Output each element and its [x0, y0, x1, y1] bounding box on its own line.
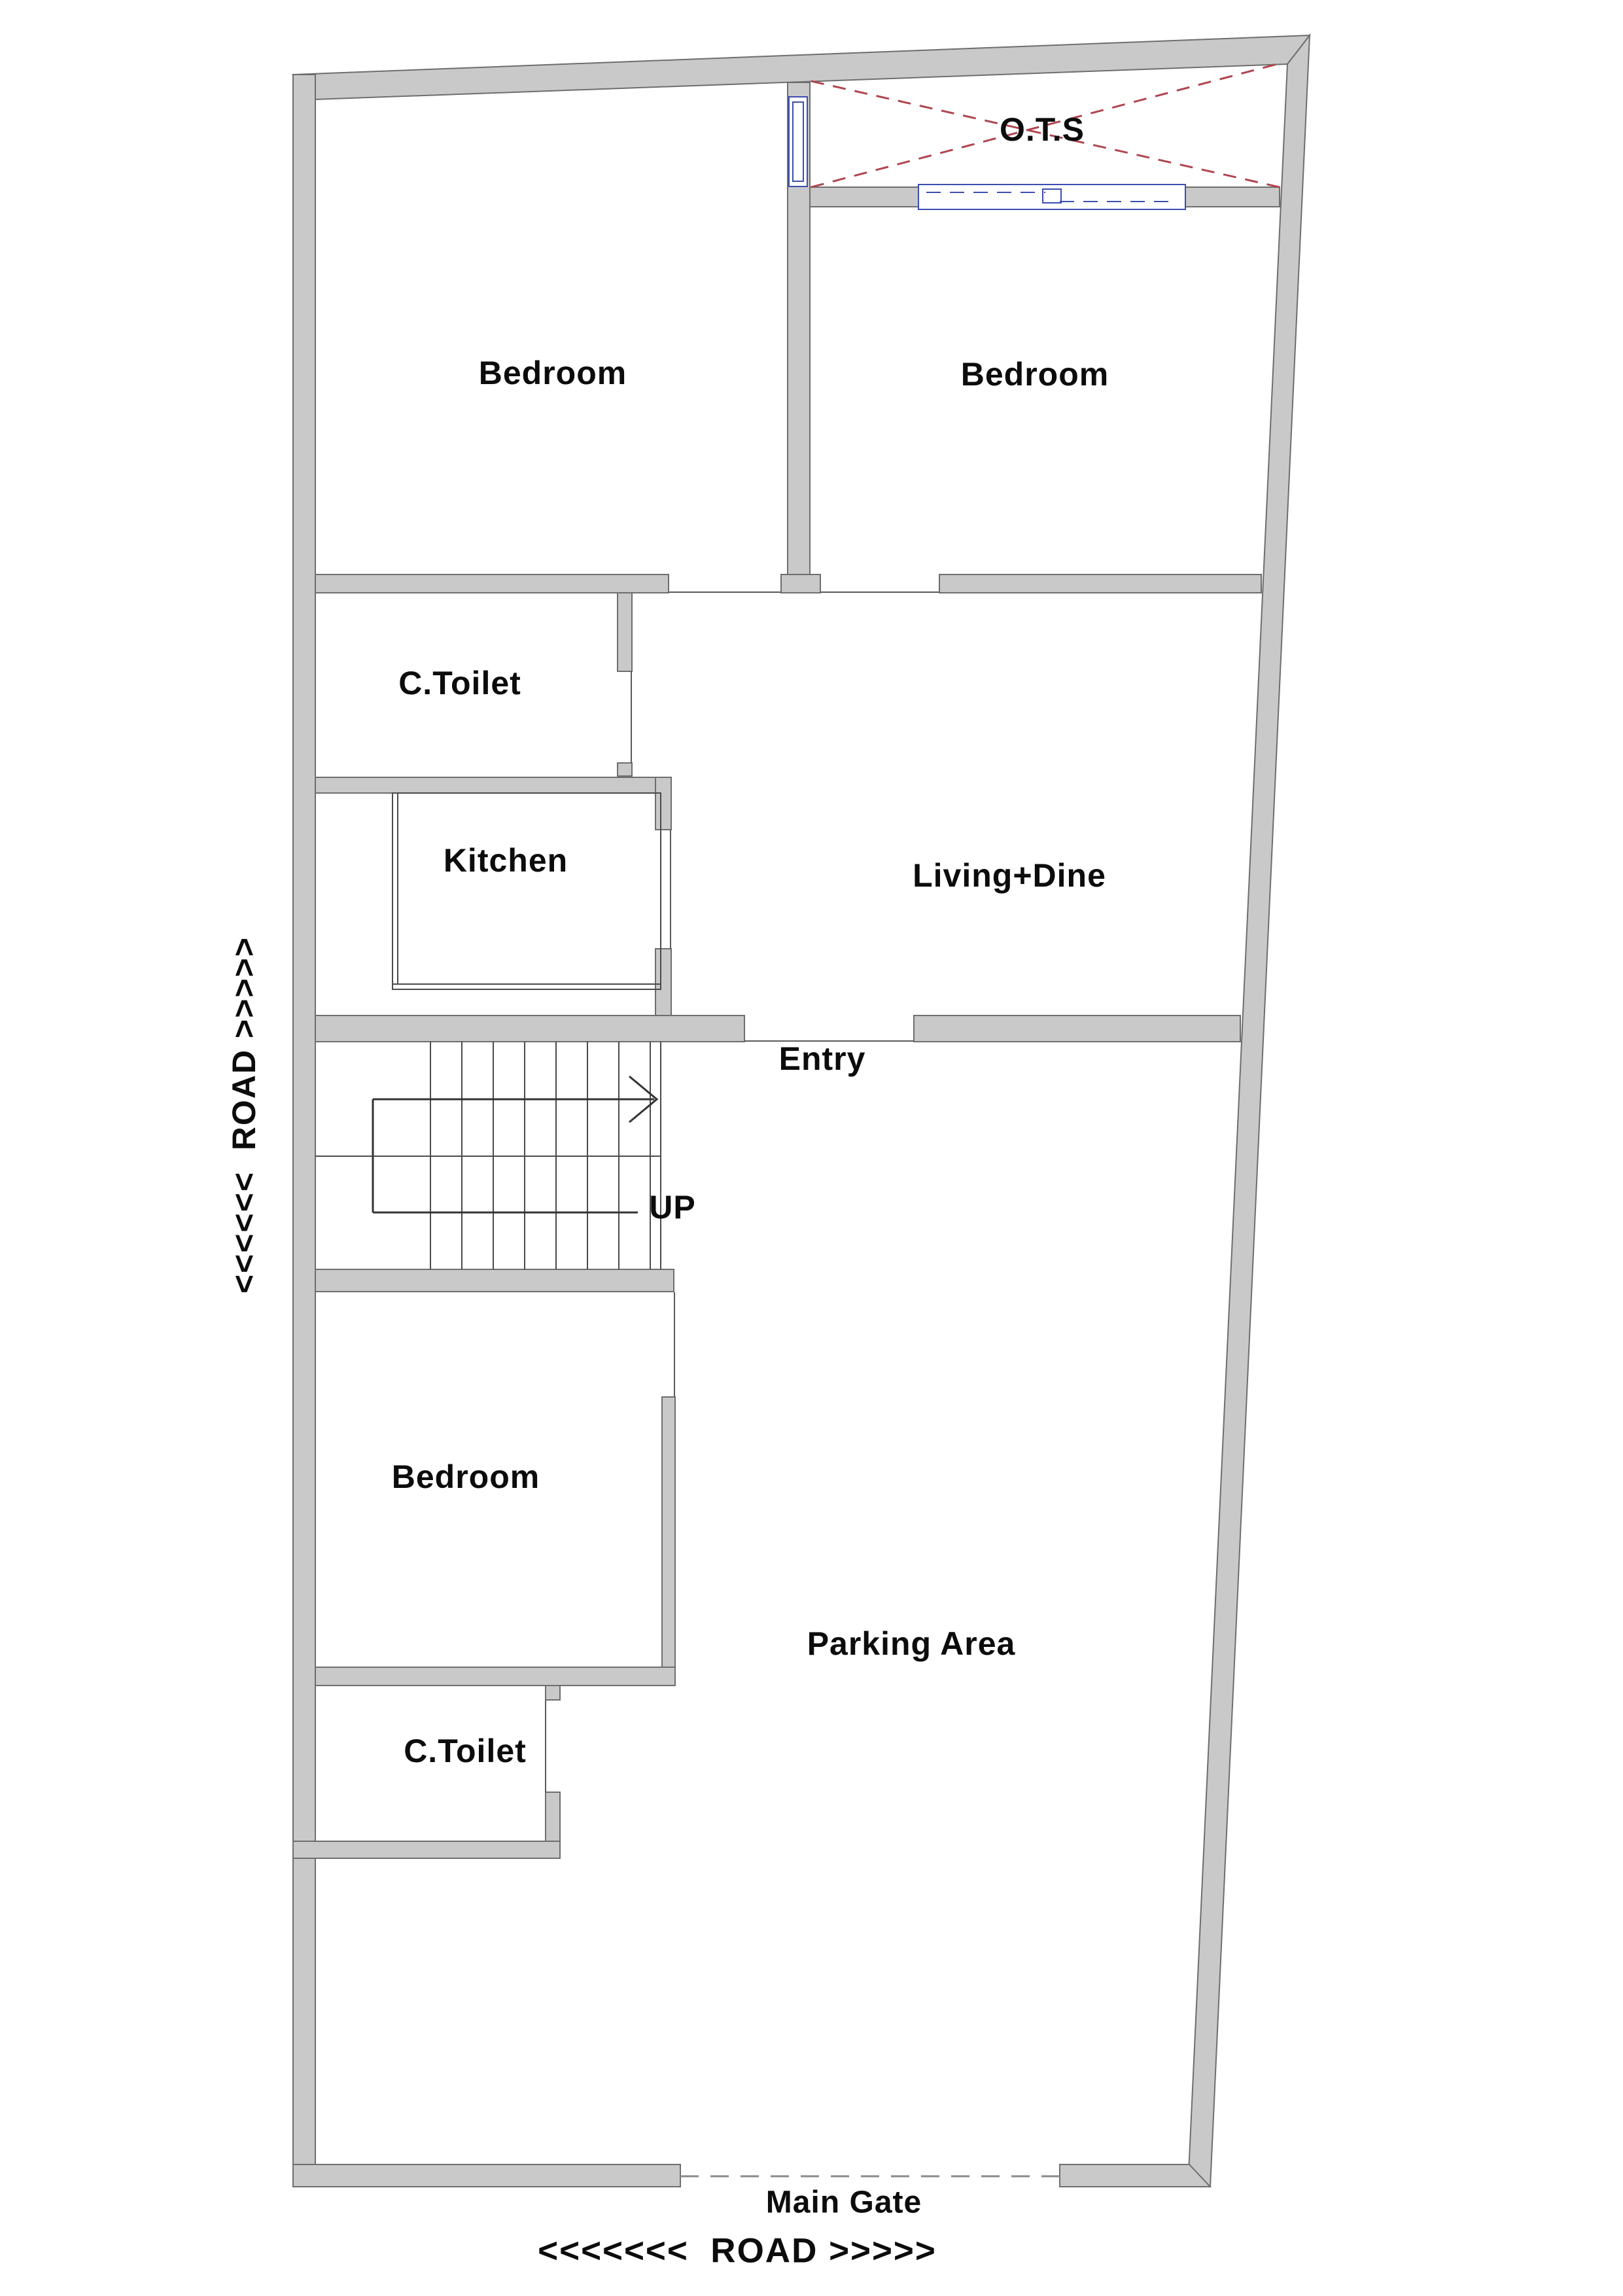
wall-bottom-left — [293, 2164, 680, 2187]
room-label-bedroom-bottom: Bedroom — [392, 1458, 540, 1496]
wall-left — [293, 75, 315, 2187]
ots-bottom-window — [918, 185, 1185, 209]
room-label-living-dine: Living+Dine — [913, 857, 1106, 894]
room-label-ots: O.T.S — [1000, 111, 1085, 149]
wall-bedroom3-bottom — [315, 1667, 675, 1686]
wall-ctoilet2-door-stub — [546, 1686, 560, 1700]
room-label-parking: Parking Area — [807, 1625, 1016, 1663]
kitchen-counter-outline — [393, 793, 661, 989]
staircase — [315, 1042, 661, 1269]
wall-ctoilet1-right-stub — [618, 763, 632, 776]
wall-bedrooms-bottom-b — [939, 574, 1261, 593]
wall-bedroom3-right — [662, 1397, 675, 1669]
room-label-entry: Entry — [779, 1040, 866, 1078]
wall-kitchen-hook — [655, 777, 671, 830]
wall-ctoilet2-bottom — [293, 1841, 560, 1858]
room-label-ctoilet-upper: C.Toilet — [398, 664, 521, 702]
main-gate-label: Main Gate — [766, 2185, 922, 2221]
wall-stair-bottom — [315, 1269, 674, 1292]
wall-living-bottom — [914, 1016, 1240, 1042]
wall-bedrooms-bottom-a — [315, 574, 669, 593]
ots-left-window — [789, 97, 807, 186]
stair-up-arrow — [373, 1076, 657, 1212]
road-label-bottom: <<<<<<< ROAD >>>>> — [538, 2231, 937, 2271]
room-label-bedroom-top-left: Bedroom — [479, 354, 627, 392]
room-label-kitchen: Kitchen — [444, 841, 568, 879]
room-label-bedroom-top-right: Bedroom — [961, 355, 1109, 393]
floor-plan-page: Bedroom Bedroom O.T.S C.Toilet Kitchen L… — [0, 0, 1623, 2296]
wall-bottom-right — [1060, 2164, 1210, 2187]
room-label-ctoilet-lower: C.Toilet — [404, 1732, 527, 1770]
wall-kitchen-top — [315, 777, 655, 793]
wall-right — [1188, 35, 1310, 2187]
wall-ctoilet1-right-upper — [618, 593, 632, 671]
stairs-up-label: UP — [649, 1188, 695, 1226]
wall-stair-top-left — [315, 1016, 744, 1042]
wall-bedrooms-bottom-cap — [781, 574, 820, 593]
road-label-left: <<<<<< ROAD >>>>> — [225, 936, 263, 1294]
